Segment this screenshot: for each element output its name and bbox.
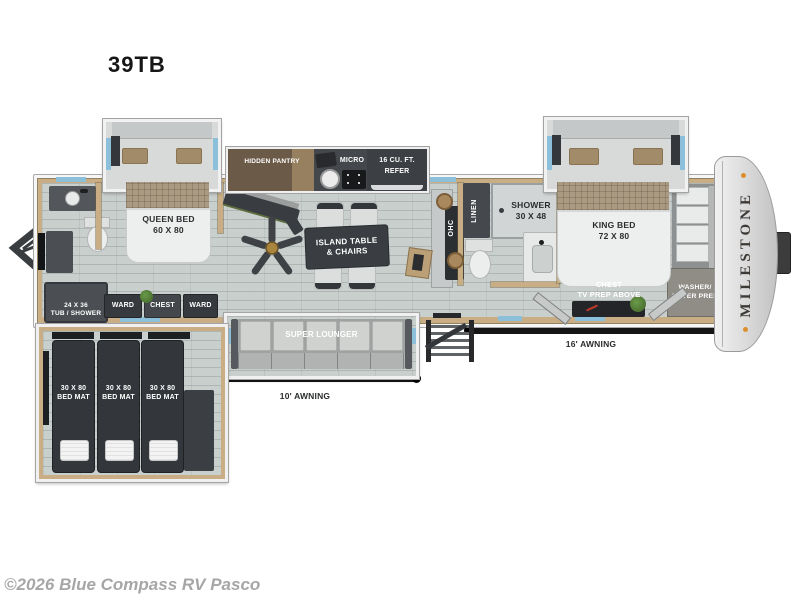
- tub-shower-label: TUB / SHOWER: [51, 310, 101, 318]
- chest-tv-label-line1: CHEST: [563, 280, 655, 290]
- wall-rearbath-bedroom: [96, 183, 101, 249]
- kitchen-slide: HIDDEN PANTRY MICRO 16 CU. FT. REFER: [226, 147, 429, 193]
- chest-label: CHEST: [150, 302, 175, 311]
- king-bed-slide: [544, 117, 688, 192]
- hidden-pantry-label: HIDDEN PANTRY: [232, 158, 312, 165]
- queen-pillow: [122, 148, 148, 164]
- wardrobe-left: WARD: [104, 294, 142, 318]
- faucet-icon: [80, 189, 88, 193]
- refrigerator-door: [371, 185, 423, 190]
- bath-vanity: [523, 232, 560, 285]
- bunk-window: [148, 332, 190, 339]
- closet-shelf: [676, 244, 709, 262]
- king-bed: KING BED 72 X 80: [557, 210, 671, 287]
- vanity-sink: [532, 245, 553, 273]
- rear-bath-counter: [49, 186, 96, 211]
- wardrobe-right-label: WARD: [189, 302, 211, 311]
- king-bed-label: KING BED: [592, 220, 635, 231]
- page-title: 39TB: [108, 52, 166, 78]
- window-accent: [56, 177, 86, 182]
- chest-tv-label-line2: TV PREP ABOVE: [563, 290, 655, 300]
- bed-mat-label: 30 X 80: [150, 385, 176, 394]
- hidden-pantry-cabinet: [228, 149, 292, 191]
- cooktop: [342, 170, 366, 189]
- milestone-logo: MILESTONE: [737, 191, 756, 318]
- refer-label-line1: 16 CU. FT.: [369, 156, 425, 167]
- ohc-label: OHC: [448, 211, 460, 245]
- super-lounger-slide: SUPER LOUNGER: [224, 313, 419, 379]
- bunk-slide: 30 X 80 BED MAT 30 X 80 BED MAT 30 X 80 …: [36, 324, 228, 482]
- kitchen-round-sink: [320, 169, 340, 189]
- bunk-window: [43, 351, 49, 425]
- copyright-text: ©2026 Blue Compass RV Pasco: [4, 575, 260, 595]
- window-accent: [575, 317, 605, 321]
- bunk-bench: [184, 390, 214, 471]
- bath-toilet-bowl: [469, 250, 491, 279]
- bed-mat-label2: BED MAT: [102, 394, 135, 403]
- closet-shelf: [676, 206, 709, 224]
- window-accent: [498, 316, 522, 321]
- bunk-window: [52, 332, 94, 339]
- ceiling-fan-icon: [237, 213, 307, 283]
- prep-table: [405, 247, 433, 279]
- shower-size: 30 X 48: [516, 211, 547, 222]
- floorplan-page: 39TB 24 X 36 TUB / SHOWER: [0, 0, 800, 600]
- remote-accent: [586, 305, 598, 312]
- closet-shelf: [676, 225, 709, 243]
- chair-back: [351, 203, 377, 209]
- rear-bath-cabinet: [46, 231, 73, 273]
- island-table-label2: & CHAIRS: [326, 246, 367, 258]
- wardrobe-left-label: WARD: [112, 302, 134, 311]
- door-threshold: [433, 313, 461, 318]
- tub-shower-label: 24 X 36: [64, 302, 88, 310]
- queen-bed-label: QUEEN BED: [142, 214, 194, 225]
- wood-cabinet: [292, 149, 314, 191]
- wardrobe-right: WARD: [183, 294, 218, 318]
- super-lounger-armrest: [231, 319, 238, 369]
- rear-tv: [38, 233, 45, 270]
- awning-16-label: 16' AWNING: [558, 339, 624, 349]
- island-table: ISLAND TABLE & CHAIRS: [304, 224, 390, 270]
- queen-bed-size: 60 X 80: [153, 225, 184, 236]
- bed-mat-label: 30 X 80: [61, 385, 87, 394]
- slide-window: [552, 135, 561, 165]
- king-headboard: [553, 120, 679, 139]
- faucet-icon: [539, 240, 544, 245]
- refer-label-line2: REFER: [369, 167, 425, 178]
- bed-mat: 30 X 80 BED MAT: [97, 340, 140, 473]
- plant-icon: [140, 290, 153, 303]
- chair-back: [317, 203, 343, 209]
- bed-mat-label2: BED MAT: [57, 394, 90, 403]
- shower-label: SHOWER: [511, 200, 550, 211]
- bar-stool: [436, 193, 453, 210]
- front-cap: MILESTONE: [714, 156, 778, 352]
- window-accent: [213, 138, 218, 170]
- king-bed-size: 72 X 80: [599, 231, 630, 242]
- refer-label: 16 CU. FT. REFER: [369, 156, 425, 177]
- super-lounger-seat: [238, 353, 405, 369]
- slide-window: [111, 136, 120, 166]
- bed-mat-label: 30 X 80: [106, 385, 132, 394]
- awning-10-label: 10' AWNING: [270, 391, 340, 401]
- king-pillow: [633, 148, 663, 165]
- wall-bath-bottom: [491, 282, 559, 287]
- chest-tv-label: CHEST TV PREP ABOVE: [563, 280, 655, 300]
- slide-window: [671, 135, 680, 165]
- rear-bath-sink: [65, 191, 80, 206]
- queen-bed: QUEEN BED 60 X 80: [126, 208, 211, 263]
- bed-mat: 30 X 80 BED MAT: [141, 340, 184, 473]
- bed-mat: 30 X 80 BED MAT: [52, 340, 95, 473]
- queen-headboard: [112, 122, 212, 139]
- bunk-window: [100, 332, 142, 339]
- bed-mat-label2: BED MAT: [146, 394, 179, 403]
- linen-label: LINEN: [471, 191, 483, 231]
- entry-steps: [426, 320, 474, 362]
- chair-back: [315, 283, 341, 289]
- cutting-board: [412, 254, 424, 271]
- queen-pillow: [176, 148, 202, 164]
- chair-back: [349, 283, 375, 289]
- micro-label: MICRO: [334, 157, 370, 164]
- window-accent: [430, 177, 456, 182]
- king-pillow: [569, 148, 599, 165]
- super-lounger-label: SUPER LOUNGER: [227, 330, 416, 339]
- tub-shower: 24 X 36 TUB / SHOWER: [44, 282, 108, 323]
- bar-stool: [447, 252, 464, 269]
- super-lounger-armrest: [405, 319, 412, 369]
- window-accent: [680, 136, 685, 170]
